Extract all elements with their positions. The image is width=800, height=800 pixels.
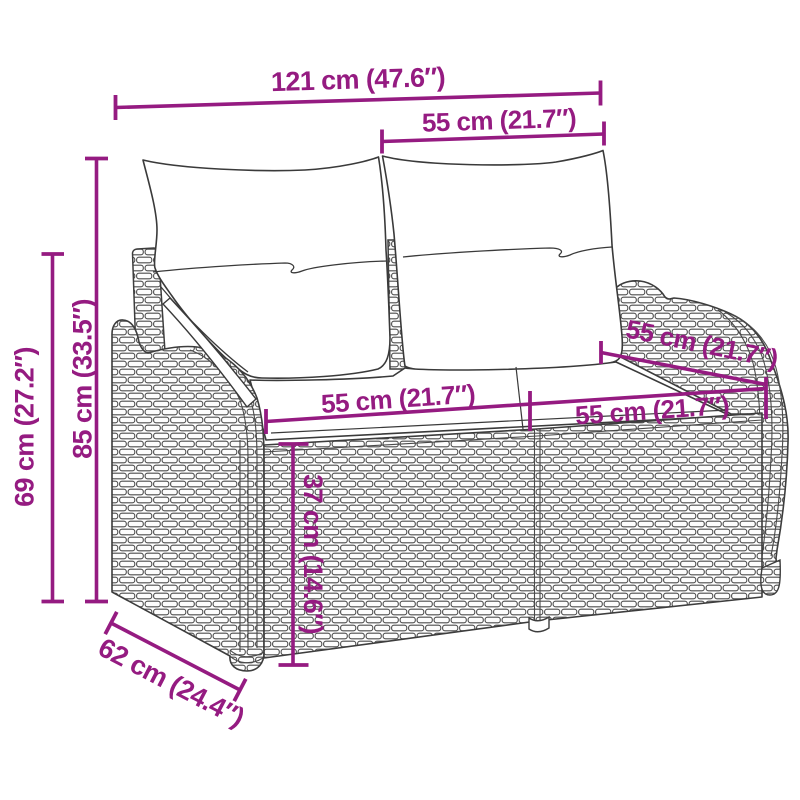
svg-text:37 cm (14.6″): 37 cm (14.6″)	[298, 474, 328, 634]
svg-text:121 cm (47.6″): 121 cm (47.6″)	[271, 62, 446, 97]
svg-text:85 cm (33.5″): 85 cm (33.5″)	[68, 299, 98, 459]
svg-text:69 cm (27.2″): 69 cm (27.2″)	[10, 347, 40, 507]
svg-text:55 cm (21.7″): 55 cm (21.7″)	[421, 103, 576, 138]
